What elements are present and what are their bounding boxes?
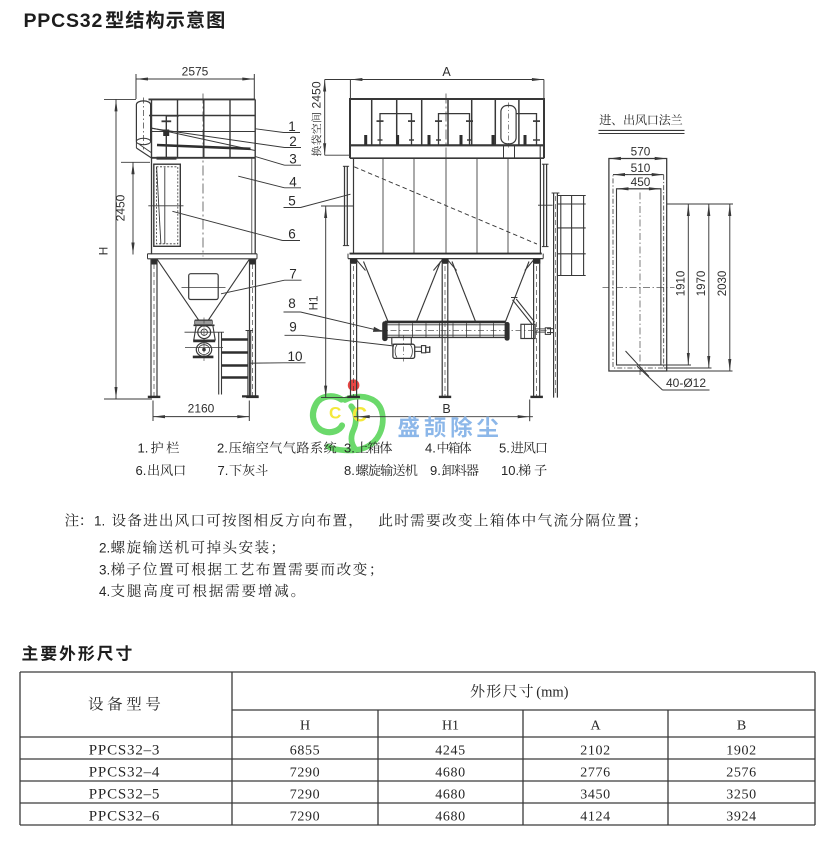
svg-text:8: 8 [288, 296, 296, 311]
svg-text:1910: 1910 [676, 271, 688, 297]
svg-text:PPCS32–6: PPCS32–6 [89, 809, 160, 825]
svg-text:7290: 7290 [290, 788, 320, 803]
svg-text:4245: 4245 [435, 744, 465, 759]
svg-text:H1: H1 [309, 296, 321, 311]
svg-text:2450: 2450 [114, 194, 128, 221]
svg-text:PPCS32: PPCS32 [24, 10, 104, 32]
svg-text:5.: 5. [499, 441, 510, 456]
svg-text:2575: 2575 [182, 65, 209, 79]
svg-text:4.: 4. [99, 584, 110, 599]
svg-text:C: C [352, 404, 367, 427]
svg-text:2776: 2776 [580, 766, 610, 781]
svg-text:4.: 4. [425, 441, 436, 456]
svg-text:2160: 2160 [188, 402, 215, 416]
svg-text:H: H [300, 718, 310, 733]
svg-text:9: 9 [289, 320, 297, 335]
svg-text:3924: 3924 [726, 810, 756, 825]
svg-text:B: B [442, 402, 450, 416]
svg-text:4124: 4124 [580, 810, 610, 825]
svg-text:1.: 1. [94, 514, 105, 529]
svg-text:3250: 3250 [726, 788, 756, 803]
svg-text:1970: 1970 [696, 271, 708, 297]
svg-text:2: 2 [289, 134, 297, 149]
svg-text:8.: 8. [344, 463, 355, 478]
svg-text:1902: 1902 [726, 744, 756, 759]
svg-text:3.: 3. [99, 563, 110, 578]
svg-text:10: 10 [287, 349, 302, 364]
svg-text:6.: 6. [136, 463, 147, 478]
svg-text:5: 5 [288, 194, 296, 209]
svg-text:7.: 7. [218, 463, 229, 478]
svg-text:4680: 4680 [435, 766, 465, 781]
svg-text:6855: 6855 [290, 744, 320, 759]
svg-text:7: 7 [289, 267, 297, 282]
svg-text:PPCS32–4: PPCS32–4 [89, 765, 160, 781]
svg-text:H: H [97, 247, 111, 256]
svg-text:510: 510 [631, 161, 651, 175]
svg-text:4680: 4680 [435, 810, 465, 825]
svg-text:PPCS32–3: PPCS32–3 [89, 743, 160, 759]
svg-text:2102: 2102 [580, 744, 610, 759]
svg-text:2.: 2. [99, 541, 110, 556]
svg-text:1.: 1. [138, 441, 149, 456]
svg-text:40-Ø12: 40-Ø12 [666, 376, 706, 390]
svg-text:3.: 3. [344, 441, 355, 456]
svg-text:(mm): (mm) [536, 685, 568, 701]
svg-text:9.: 9. [430, 463, 441, 478]
svg-text:4680: 4680 [435, 788, 465, 803]
svg-text:4: 4 [289, 175, 297, 190]
svg-text:3450: 3450 [580, 788, 610, 803]
svg-text:7290: 7290 [290, 810, 320, 825]
svg-text:2576: 2576 [726, 766, 756, 781]
svg-text:7290: 7290 [290, 766, 320, 781]
svg-text:450: 450 [631, 175, 651, 189]
svg-text:10.: 10. [501, 463, 519, 478]
svg-text:570: 570 [631, 145, 651, 159]
svg-text:H1: H1 [442, 718, 459, 733]
svg-text:6: 6 [288, 227, 296, 242]
svg-text:2.: 2. [217, 441, 228, 456]
svg-text:3: 3 [289, 152, 297, 167]
svg-text:1: 1 [288, 119, 296, 134]
svg-text:2450: 2450 [310, 81, 324, 108]
svg-text:2030: 2030 [717, 271, 729, 297]
svg-text:A: A [442, 65, 451, 79]
svg-text:C: C [329, 404, 341, 423]
svg-text:PPCS32–5: PPCS32–5 [89, 787, 160, 803]
svg-text:B: B [737, 718, 746, 733]
svg-text:A: A [590, 718, 601, 733]
